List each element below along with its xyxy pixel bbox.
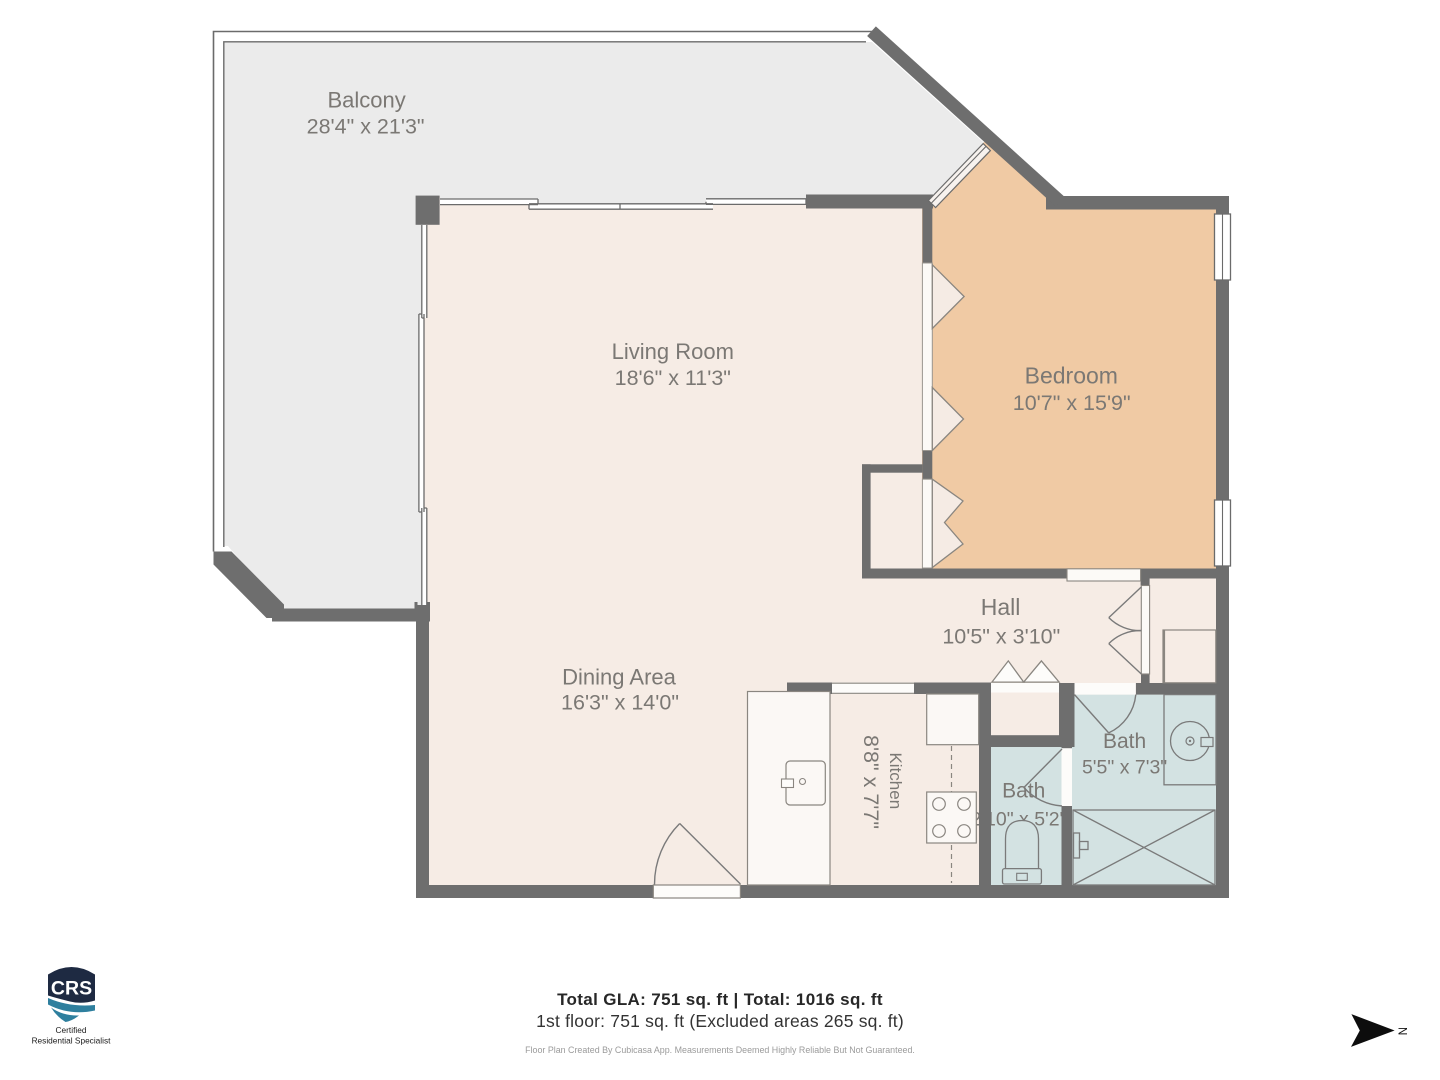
svg-text:8'8" x 7'7": 8'8" x 7'7" [859,735,883,829]
svg-text:Bath: Bath [1103,730,1146,753]
svg-text:CRS: CRS [51,978,92,1000]
svg-text:Living Room: Living Room [612,339,734,364]
svg-text:Balcony: Balcony [327,88,405,113]
svg-text:N: N [1396,1027,1408,1035]
svg-text:Dining Area: Dining Area [562,665,677,690]
svg-text:16'3" x 14'0": 16'3" x 14'0" [561,691,679,715]
svg-text:Floor Plan Created By Cubicasa: Floor Plan Created By Cubicasa App. Meas… [525,1045,915,1055]
svg-text:Bedroom: Bedroom [1025,362,1118,388]
svg-text:10'7" x 15'9": 10'7" x 15'9" [1013,391,1131,415]
svg-text:Hall: Hall [981,594,1021,620]
svg-text:1st floor: 751 sq. ft (Exclude: 1st floor: 751 sq. ft (Excluded areas 26… [536,1011,904,1031]
svg-text:Residential Specialist: Residential Specialist [32,1036,112,1046]
svg-text:10'5" x 3'10": 10'5" x 3'10" [942,625,1060,649]
svg-text:Total GLA: 751 sq. ft | Total:: Total GLA: 751 sq. ft | Total: 1016 sq. … [557,990,883,1009]
svg-text:5'5" x 7'3": 5'5" x 7'3" [1082,756,1167,778]
svg-text:28'4" x 21'3": 28'4" x 21'3" [307,115,425,139]
svg-text:Kitchen: Kitchen [886,752,905,809]
svg-text:Certified: Certified [56,1025,87,1035]
svg-text:18'6" x 11'3": 18'6" x 11'3" [615,366,731,390]
